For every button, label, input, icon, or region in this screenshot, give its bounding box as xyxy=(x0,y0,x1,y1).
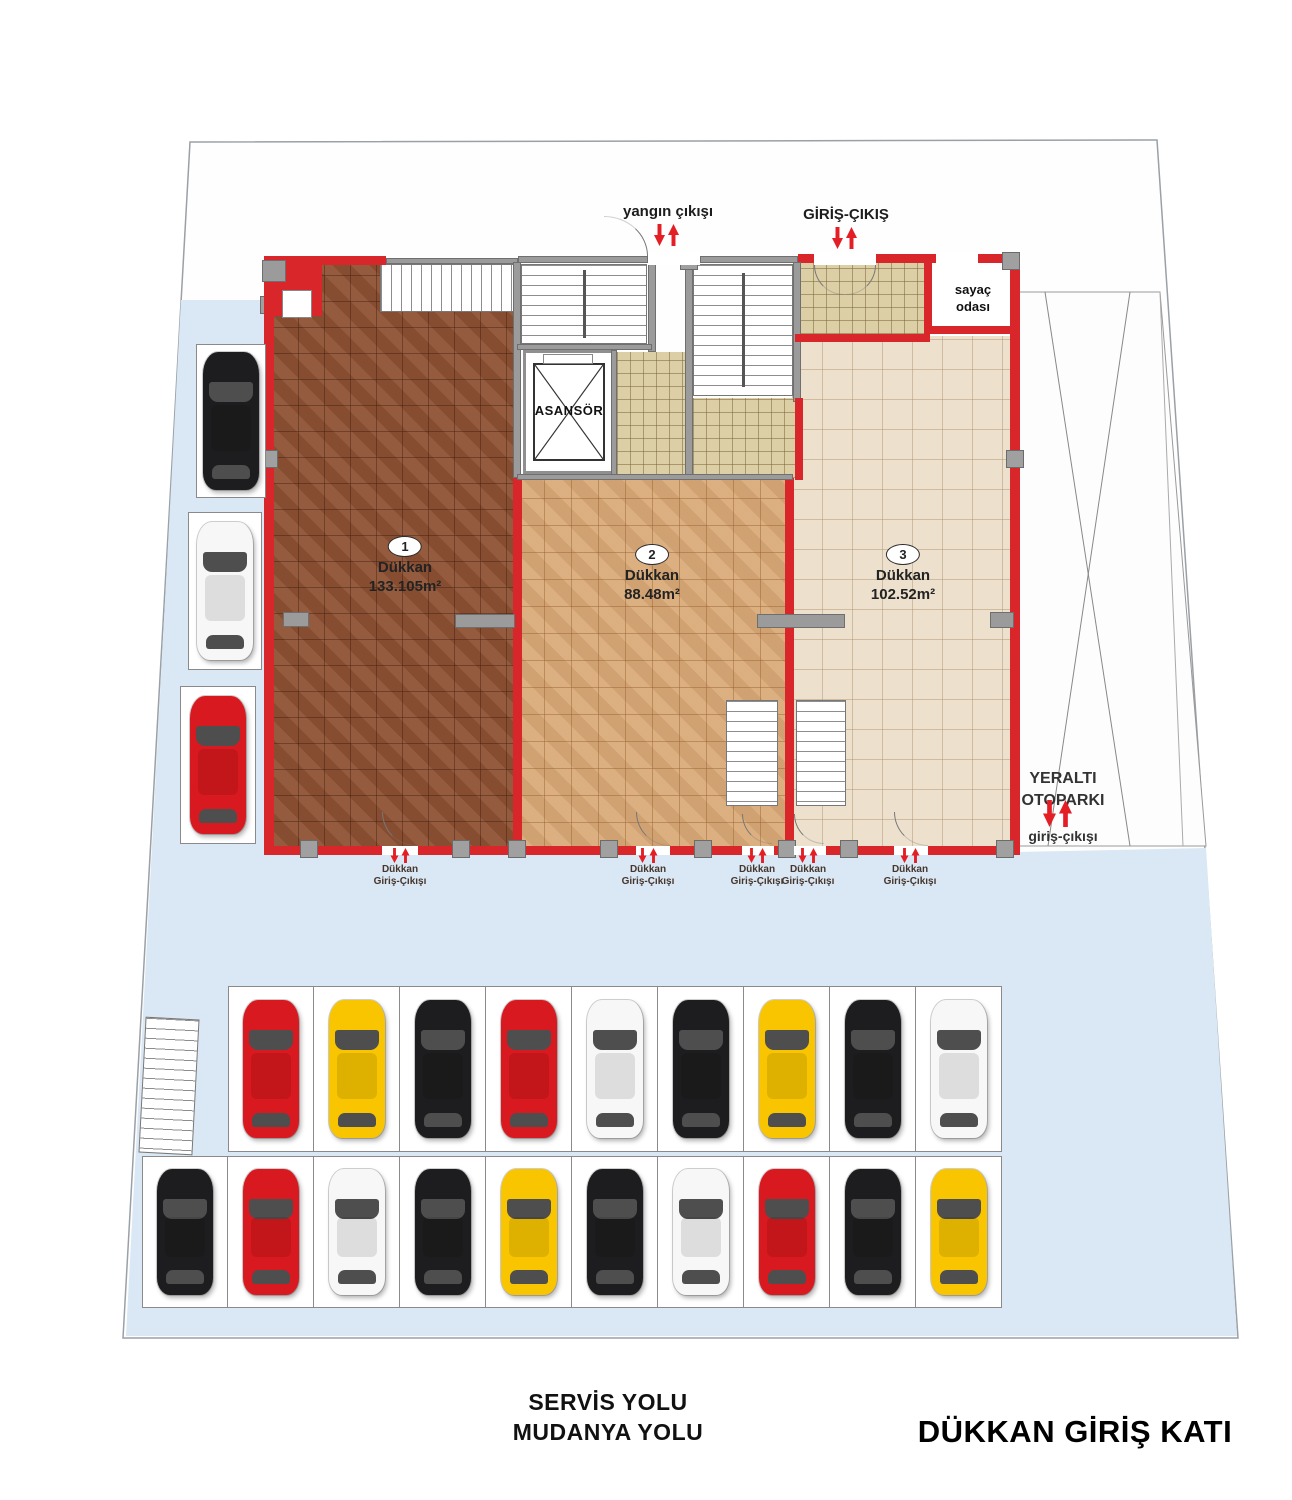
shop-3-label: 3 Dükkan 102.52m² xyxy=(871,544,935,604)
wall-shop2-shop3 xyxy=(785,478,794,850)
fire-exit-label: yangın çıkışı xyxy=(623,203,713,220)
column xyxy=(452,840,470,858)
elevator-label: ASANSÖR xyxy=(518,403,620,418)
parking-stall xyxy=(314,986,400,1152)
underground-parking-entry-label: giriş-çıkışı xyxy=(1028,828,1097,844)
car-black xyxy=(845,1000,901,1138)
road-name: SERVİS YOLU MUDANYA YOLU xyxy=(513,1388,703,1448)
car-black xyxy=(845,1169,901,1295)
parking-stall xyxy=(572,1156,658,1308)
car-yellow xyxy=(931,1169,987,1295)
column xyxy=(600,840,618,858)
car-black xyxy=(587,1169,643,1295)
shop-2-number-badge: 2 xyxy=(635,544,669,565)
parking-stall xyxy=(830,1156,916,1308)
hall-wall-bottom xyxy=(795,334,930,342)
parking-row-top xyxy=(228,986,1002,1152)
car-red xyxy=(243,1169,299,1295)
elevator-wall-top xyxy=(517,344,652,350)
elevator-corridor-floor xyxy=(617,352,689,478)
parking-ramp xyxy=(1018,292,1206,846)
parking-stall xyxy=(572,986,658,1152)
main-entrance-door xyxy=(814,252,876,265)
wall-stub xyxy=(757,614,845,628)
parking-stall xyxy=(744,986,830,1152)
updown-arrows-icon xyxy=(832,227,857,249)
wall-top-3 xyxy=(518,256,648,263)
entrance-exit-label: GİRİŞ-ÇIKIŞ xyxy=(803,206,889,223)
parking-row-bottom xyxy=(142,1156,1002,1308)
hall-wall-right xyxy=(795,398,803,480)
car-red xyxy=(243,1000,299,1138)
meter-room-label: sayaç odası xyxy=(955,282,991,316)
parking-stall xyxy=(916,1156,1002,1308)
car-white xyxy=(673,1169,729,1295)
parking-stall xyxy=(916,986,1002,1152)
secondary-staircase xyxy=(693,264,793,396)
shop-entrance-label: Dükkan Giriş-Çıkışı xyxy=(731,848,784,888)
shop-2-inner-stair xyxy=(726,700,778,806)
stair2-wall-right xyxy=(793,262,801,402)
wall-top-4 xyxy=(700,256,798,263)
wall-right xyxy=(1010,262,1020,850)
parking-stall xyxy=(658,1156,744,1308)
stair2-wall-left xyxy=(685,262,693,480)
elevator-counterweight xyxy=(543,354,593,364)
car-black xyxy=(673,1000,729,1138)
parking-stall xyxy=(744,1156,830,1308)
parking-stall xyxy=(830,986,916,1152)
shop-entrance-label: Dükkan Giriş-Çıkışı xyxy=(884,848,937,888)
wall-stub xyxy=(283,612,309,627)
parking-stall xyxy=(486,1156,572,1308)
corner-niche xyxy=(282,290,312,318)
parking-stall xyxy=(314,1156,400,1308)
shop-3-inner-stair xyxy=(796,700,846,806)
shop-entrance-label: Dükkan Giriş-Çıkışı xyxy=(374,848,427,888)
parking-stall xyxy=(400,1156,486,1308)
updown-arrows-icon xyxy=(1043,800,1072,827)
core-wall-mid xyxy=(648,262,656,352)
car-black xyxy=(415,1000,471,1138)
corner-column xyxy=(262,260,286,282)
parking-stall xyxy=(658,986,744,1152)
car-yellow xyxy=(329,1000,385,1138)
car-white xyxy=(587,1000,643,1138)
fire-exit-door xyxy=(648,252,700,265)
parking-stall xyxy=(228,1156,314,1308)
core-wall-bottom xyxy=(517,474,793,480)
parking-stall xyxy=(400,986,486,1152)
car-yellow xyxy=(501,1169,557,1295)
shop-1-staircase xyxy=(380,264,514,312)
updown-arrows-icon xyxy=(654,224,679,246)
elevator: ASANSÖR xyxy=(523,350,615,474)
car-white xyxy=(197,522,253,660)
column xyxy=(996,840,1014,858)
core-wall-left xyxy=(513,262,521,478)
car-black xyxy=(415,1169,471,1295)
shop-1-number-badge: 1 xyxy=(388,536,422,557)
wall-top-2 xyxy=(386,258,518,264)
shop-entrance-label: Dükkan Giriş-Çıkışı xyxy=(782,848,835,888)
parking-stall xyxy=(228,986,314,1152)
shop-1-label: 1 Dükkan 133.105m² xyxy=(369,536,442,596)
meter-room-wall-bottom xyxy=(924,326,1020,334)
shop-2-label: 2 Dükkan 88.48m² xyxy=(624,544,680,604)
meter-room-door xyxy=(938,252,978,263)
wall-shop1-shop2 xyxy=(513,478,522,850)
page-title: DÜKKAN GİRİŞ KATI xyxy=(918,1414,1232,1450)
parking-stall xyxy=(180,686,256,844)
car-red xyxy=(759,1169,815,1295)
car-black xyxy=(203,352,259,490)
column xyxy=(840,840,858,858)
car-white xyxy=(329,1169,385,1295)
car-white xyxy=(931,1000,987,1138)
column xyxy=(1006,450,1024,468)
main-staircase xyxy=(521,264,647,344)
parking-stall xyxy=(142,1156,228,1308)
updown-arrows-icon xyxy=(782,848,835,863)
updown-arrows-icon xyxy=(622,848,675,863)
wall-stub xyxy=(455,614,515,628)
column xyxy=(508,840,526,858)
car-red xyxy=(501,1000,557,1138)
shop-entrance-label: Dükkan Giriş-Çıkışı xyxy=(622,848,675,888)
car-black xyxy=(157,1169,213,1295)
parking-stall xyxy=(196,344,266,498)
meter-room-wall-left xyxy=(924,258,932,332)
wall-stub xyxy=(990,612,1014,628)
column xyxy=(300,840,318,858)
outdoor-staircase xyxy=(138,1017,199,1156)
updown-arrows-icon xyxy=(731,848,784,863)
updown-arrows-icon xyxy=(374,848,427,863)
parking-stall xyxy=(486,986,572,1152)
column xyxy=(694,840,712,858)
shop-3-number-badge: 3 xyxy=(886,544,920,565)
parking-stall xyxy=(188,512,262,670)
floor-plan-canvas: ASANSÖR xyxy=(0,0,1292,1500)
updown-arrows-icon xyxy=(884,848,937,863)
hall-corridor-floor xyxy=(693,398,795,478)
car-yellow xyxy=(759,1000,815,1138)
column xyxy=(1002,252,1020,270)
car-red xyxy=(190,696,246,834)
